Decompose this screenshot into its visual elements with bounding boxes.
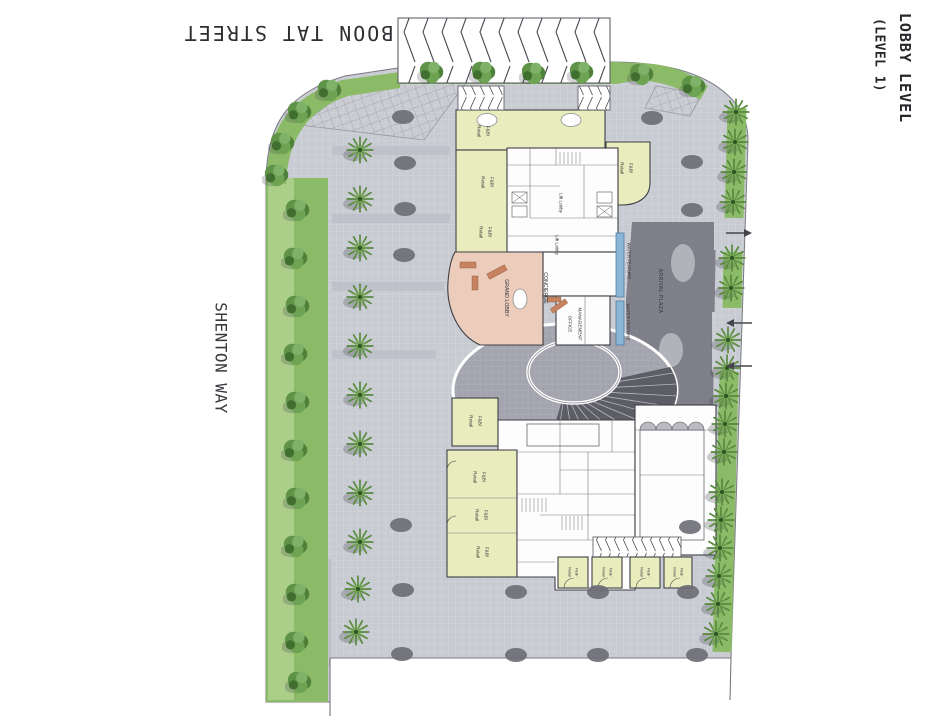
- driveway-exit: [714, 220, 742, 250]
- management-office-label: MANAGEMENT: [578, 308, 583, 341]
- street-label-boon-tat: BOON TAT STREET: [183, 21, 394, 45]
- retail-label: F&B/: [647, 568, 652, 578]
- retail-label: Retail: [602, 567, 607, 577]
- retail-label: F&B/: [482, 472, 487, 483]
- retail-label: F&B/: [478, 416, 483, 427]
- retail-label: Retail: [476, 546, 481, 558]
- retail-label: Retail: [479, 226, 484, 238]
- paving-band: [332, 282, 444, 291]
- lift-lobby-label: Lift Lobby: [559, 193, 564, 214]
- management-office-label: OFFICE: [568, 316, 573, 333]
- lift-lobby-label: Lift Lobby: [555, 235, 560, 256]
- retail-label: F&B/: [486, 126, 491, 137]
- water-feature: [616, 233, 624, 297]
- tree-pit: [679, 520, 701, 534]
- retail-label: Retail: [473, 471, 478, 483]
- tree-pit: [681, 203, 703, 217]
- tree-pit: [587, 648, 609, 662]
- tree-pit: [641, 111, 663, 125]
- tree-pit: [392, 583, 414, 597]
- tree-pit: [394, 156, 416, 170]
- property-line: [730, 658, 731, 700]
- column-oval: [513, 289, 527, 309]
- entrance-canopy: [593, 537, 681, 557]
- retail-label: F&B/: [629, 163, 634, 174]
- tree-pit: [505, 648, 527, 662]
- column-oval: [561, 114, 581, 127]
- tree-pit: [677, 585, 699, 599]
- planter-pit: [671, 244, 695, 282]
- concierge-room: [543, 252, 618, 296]
- tree-pit: [391, 647, 413, 661]
- grand-lobby-label: GRAND LOBBY: [503, 279, 509, 317]
- tree-pit: [390, 518, 412, 532]
- retail-left: [456, 150, 510, 255]
- sheet-title: LOBBY LEVEL: [896, 13, 914, 123]
- concierge-label: CONCIERGE: [542, 272, 548, 304]
- retail-label: F&B/: [609, 568, 614, 578]
- retail-label: Retail: [640, 567, 645, 577]
- retail-label: Retail: [620, 162, 625, 174]
- retail-label: F&B/: [490, 177, 495, 188]
- tree-pit: [587, 585, 609, 599]
- tree-pit: [505, 585, 527, 599]
- street-label-shenton-way: SHENTON WAY: [212, 302, 231, 413]
- retail-label: Retail: [673, 567, 678, 577]
- arrival-plaza-label: ARRIVAL PLAZA: [657, 269, 663, 314]
- retail-label: F&B/: [488, 227, 493, 238]
- retail-label: F&B/: [484, 510, 489, 521]
- water-feature: [616, 301, 624, 345]
- paving-band: [332, 214, 450, 223]
- retail-label: F&B/: [680, 568, 685, 578]
- retail-label: Retail: [481, 176, 486, 188]
- tree-pit: [686, 648, 708, 662]
- site-plan-canvas: F&B/ Retail F&B/ Retail F&B/ Retail F&B/…: [0, 0, 943, 717]
- retail-label: Retail: [568, 567, 573, 577]
- retail-room: [452, 398, 498, 446]
- retail-label: F&B/: [485, 547, 490, 558]
- retail-label: Retail: [477, 125, 482, 137]
- retail-label: Retail: [469, 415, 474, 427]
- sheet-subtitle: (LEVEL 1): [872, 18, 887, 92]
- retail-label: Retail: [475, 509, 480, 521]
- tree-pit: [393, 248, 415, 262]
- retail-label: F&B/: [575, 568, 580, 578]
- water-feature-label: WATER FEATURE: [627, 243, 632, 280]
- tree-pit: [392, 110, 414, 124]
- retail-column: [447, 450, 517, 577]
- lower-building: [447, 398, 716, 590]
- tree-pit: [394, 202, 416, 216]
- water-feature-label: WATER FEATURE: [626, 304, 631, 341]
- tree-pit: [681, 155, 703, 169]
